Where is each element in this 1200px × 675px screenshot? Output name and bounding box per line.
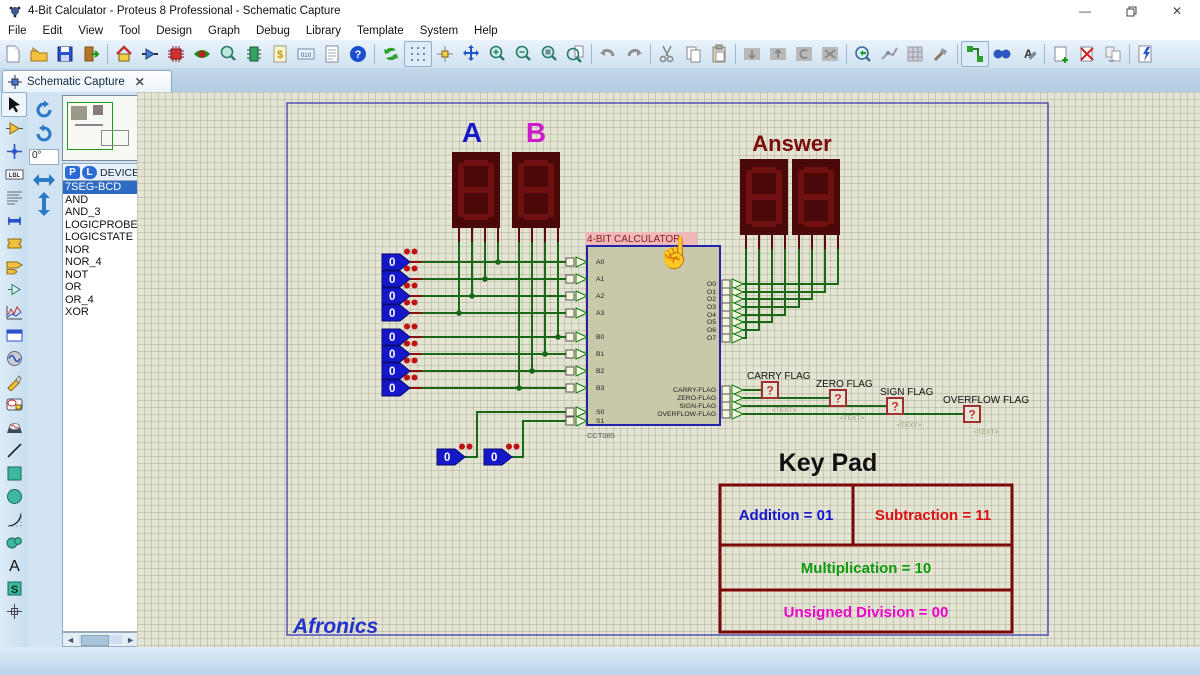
scroll-left-icon[interactable]: ◄ <box>63 635 78 645</box>
undo-icon[interactable] <box>595 42 621 66</box>
device-item[interactable]: NOT <box>63 269 138 282</box>
svg-text:ZERO-FLAG: ZERO-FLAG <box>677 395 716 402</box>
device-item[interactable]: NOR <box>63 244 138 257</box>
device-item[interactable]: AND_3 <box>63 206 138 219</box>
design-tool-icon[interactable] <box>928 42 954 66</box>
svg-text:OVERFLOW-FLAG: OVERFLOW-FLAG <box>657 411 716 418</box>
svg-text:B2: B2 <box>596 368 605 375</box>
pan-icon[interactable] <box>458 42 484 66</box>
label-b: B <box>526 117 546 148</box>
device-item[interactable]: 7SEG-BCD <box>63 181 138 194</box>
2d-circle-icon[interactable] <box>2 485 26 508</box>
svg-text:ZERO FLAG: ZERO FLAG <box>816 379 873 390</box>
label-a: A <box>462 117 482 148</box>
electrical-check-icon[interactable] <box>1133 42 1159 66</box>
menu-system[interactable]: System <box>412 25 466 37</box>
wire-label-mode-icon[interactable]: LBL <box>2 163 26 186</box>
save-icon[interactable] <box>52 42 78 66</box>
scrollbar-thumb[interactable] <box>81 635 109 646</box>
menu-template[interactable]: Template <box>349 25 412 37</box>
wire-autorouter-icon[interactable] <box>961 41 989 67</box>
svg-text:A2: A2 <box>596 293 605 300</box>
menu-design[interactable]: Design <box>148 25 200 37</box>
menu-file[interactable]: File <box>0 25 35 37</box>
tab-bar: Schematic Capture ✕ <box>0 68 1200 93</box>
zoom-sheet-icon[interactable] <box>562 42 588 66</box>
component-icon[interactable] <box>137 42 163 66</box>
display-answer-low[interactable] <box>792 159 840 235</box>
svg-text:010: 010 <box>301 52 312 59</box>
svg-text:O1: O1 <box>707 289 716 296</box>
svg-text:<TEXT>: <TEXT> <box>974 429 998 436</box>
block-move-icon <box>765 42 791 66</box>
svg-text:O3: O3 <box>707 304 716 311</box>
paste-icon[interactable] <box>706 42 732 66</box>
keypad-division: Unsigned Division = 00 <box>784 604 949 621</box>
title-bar: 4-Bit Calculator - Proteus 8 Professiona… <box>0 0 1200 22</box>
keypad-addition: Addition = 01 <box>739 507 834 524</box>
svg-text:CARRY FLAG: CARRY FLAG <box>747 371 811 382</box>
copy-icon[interactable] <box>680 42 706 66</box>
device-item[interactable]: XOR <box>63 306 138 319</box>
device-item[interactable]: AND <box>63 194 138 207</box>
design-explorer-icon[interactable] <box>215 42 241 66</box>
keypad-subtraction: Subtraction = 11 <box>875 507 991 524</box>
minimize-button[interactable]: — <box>1062 0 1108 22</box>
device-item[interactable]: LOGICSTATE <box>63 231 138 244</box>
svg-text:A: A <box>9 558 20 575</box>
svg-text:S0: S0 <box>596 409 605 416</box>
display-a[interactable] <box>452 152 500 228</box>
2d-marker-icon[interactable] <box>2 600 26 623</box>
tape-recorder-mode-icon[interactable] <box>2 324 26 347</box>
svg-text:SIGN-FLAG: SIGN-FLAG <box>679 403 716 410</box>
3d-view-icon[interactable] <box>189 42 215 66</box>
svg-text:O7: O7 <box>707 335 716 342</box>
svg-text:<TEXT>: <TEXT> <box>897 422 921 429</box>
svg-text:SIGN FLAG: SIGN FLAG <box>880 387 934 398</box>
pick-devices-button[interactable]: P <box>65 166 80 179</box>
menu-graph[interactable]: Graph <box>200 25 248 37</box>
logic-states[interactable] <box>382 249 520 466</box>
erc-report-icon[interactable] <box>319 42 345 66</box>
2d-arc-icon[interactable] <box>2 508 26 531</box>
library-button[interactable]: L <box>82 166 97 179</box>
close-button[interactable]: ✕ <box>1154 0 1200 22</box>
redraw-icon[interactable] <box>378 42 404 66</box>
pattern-icon[interactable] <box>902 42 928 66</box>
zoom-in-icon[interactable] <box>484 42 510 66</box>
block-rotate-icon <box>791 42 817 66</box>
component-mode-icon[interactable] <box>2 117 26 140</box>
import-icon[interactable] <box>78 42 104 66</box>
new-file-icon[interactable] <box>0 42 26 66</box>
tab-close-icon[interactable]: ✕ <box>135 75 145 89</box>
device-item[interactable]: OR <box>63 281 138 294</box>
hand-cursor: ☝ <box>656 234 693 271</box>
cut-icon[interactable] <box>654 42 680 66</box>
schematic-canvas[interactable]: 0 ? <box>137 92 1200 647</box>
svg-text:S1: S1 <box>596 418 605 425</box>
redo-icon[interactable] <box>621 42 647 66</box>
overview-thumbnail[interactable] <box>62 95 139 161</box>
svg-text:O4: O4 <box>707 312 716 319</box>
status-bar: i 8 Message(s) SUBCIRCUIT 4-BIT CALCULAT… <box>0 647 1200 675</box>
selector-title: DEVICES <box>100 167 139 179</box>
subcircuit-mode-icon[interactable] <box>2 232 26 255</box>
app-icon <box>8 4 22 18</box>
brand-label: Afronics <box>292 615 378 638</box>
svg-text:A3: A3 <box>596 310 605 317</box>
open-folder-icon[interactable] <box>26 42 52 66</box>
side-panel: 0° P L DEVICES 7SEG-BCD AND AND_3 LOGICP… <box>28 92 137 647</box>
junction-mode-icon[interactable] <box>2 140 26 163</box>
svg-text:B0: B0 <box>596 334 605 341</box>
menu-library[interactable]: Library <box>298 25 349 37</box>
help-icon[interactable]: ? <box>345 42 371 66</box>
device-list-scrollbar[interactable]: ◄ ► <box>62 632 139 647</box>
device-item[interactable]: LOGICPROBE ( <box>63 219 138 232</box>
svg-text:B3: B3 <box>596 385 605 392</box>
device-pin-mode-icon[interactable] <box>2 278 26 301</box>
rotate-clockwise-icon[interactable] <box>34 98 54 122</box>
menu-edit[interactable]: Edit <box>35 25 71 37</box>
zoom-out-icon[interactable] <box>510 42 536 66</box>
scroll-right-icon[interactable]: ► <box>123 635 138 645</box>
home-icon[interactable] <box>111 42 137 66</box>
menu-bar: File Edit View Tool Design Graph Debug L… <box>0 22 1200 41</box>
search-icon[interactable] <box>989 42 1015 66</box>
schematic-tab-icon <box>8 75 22 89</box>
2d-path-icon[interactable] <box>2 531 26 554</box>
display-answer-high[interactable] <box>740 159 788 235</box>
2d-symbol-icon[interactable]: S <box>2 577 26 600</box>
proteus-window: 4-Bit Calculator - Proteus 8 Professiona… <box>0 0 1200 675</box>
block-copy-icon <box>739 42 765 66</box>
svg-text:B1: B1 <box>596 351 605 358</box>
bus-mode-icon[interactable] <box>2 209 26 232</box>
svg-text:A1: A1 <box>596 276 605 283</box>
2d-box-icon[interactable] <box>2 462 26 485</box>
device-list: 7SEG-BCD AND AND_3 LOGICPROBE ( LOGICSTA… <box>62 180 139 632</box>
zoom-area-icon[interactable] <box>536 42 562 66</box>
tab-label: Schematic Capture <box>27 76 125 88</box>
origin-icon[interactable] <box>432 42 458 66</box>
2d-line-icon[interactable] <box>2 439 26 462</box>
chip-ref: CCT085 <box>587 431 615 440</box>
wire-edit-icon[interactable] <box>876 42 902 66</box>
2d-text-icon[interactable]: A <box>2 554 26 577</box>
svg-text:O6: O6 <box>707 327 716 334</box>
svg-text:O5: O5 <box>707 319 716 326</box>
keypad-multiplication: Multiplication = 10 <box>801 560 931 577</box>
svg-text:$: $ <box>277 49 283 61</box>
display-b[interactable] <box>512 152 560 228</box>
svg-text:CARRY-FLAG: CARRY-FLAG <box>673 387 716 394</box>
menu-debug[interactable]: Debug <box>248 25 298 37</box>
graph-mode-icon[interactable] <box>2 301 26 324</box>
rotate-anticlockwise-icon[interactable] <box>34 122 54 146</box>
restore-button[interactable] <box>1108 0 1154 22</box>
main-toolbar: $ 010 ? A <box>0 40 1200 69</box>
assembly-icon[interactable]: 010 <box>293 42 319 66</box>
menu-view[interactable]: View <box>70 25 111 37</box>
tab-schematic-capture[interactable]: Schematic Capture ✕ <box>2 70 172 93</box>
svg-text:LBL: LBL <box>8 173 20 179</box>
device-item[interactable]: NOR_4 <box>63 256 138 269</box>
generator-mode-icon[interactable] <box>2 347 26 370</box>
window-title: 4-Bit Calculator - Proteus 8 Professiona… <box>28 5 341 17</box>
terminal-mode-icon[interactable] <box>2 255 26 278</box>
voltage-probe-mode-icon[interactable] <box>2 370 26 393</box>
selection-mode-icon[interactable] <box>1 92 27 117</box>
mirror-vertical-icon[interactable] <box>37 192 51 216</box>
menu-help[interactable]: Help <box>466 25 506 37</box>
new-sheet-icon[interactable] <box>1048 42 1074 66</box>
text-script-mode-icon[interactable] <box>2 186 26 209</box>
keypad-title: Key Pad <box>779 449 878 477</box>
virtual-instrument-mode-icon[interactable] <box>2 416 26 439</box>
grid-toggle-icon[interactable] <box>404 41 432 67</box>
svg-text:?: ? <box>355 49 362 61</box>
pcb-chip-icon[interactable] <box>163 42 189 66</box>
goto-sheet-icon[interactable] <box>1100 42 1126 66</box>
svg-text:A0: A0 <box>596 259 605 266</box>
menu-tool[interactable]: Tool <box>111 25 148 37</box>
bill-of-materials-icon[interactable]: $ <box>267 42 293 66</box>
block-delete-icon <box>817 42 843 66</box>
mirror-horizontal-icon[interactable] <box>33 168 55 192</box>
property-assignment-icon[interactable]: A <box>1015 42 1041 66</box>
svg-text:O0: O0 <box>707 281 716 288</box>
svg-text:<TEXT>: <TEXT> <box>840 415 864 422</box>
current-probe-mode-icon[interactable] <box>2 393 26 416</box>
device-item[interactable]: OR_4 <box>63 294 138 307</box>
mode-toolbar: LBL A S <box>0 92 29 647</box>
svg-text:S: S <box>10 584 17 596</box>
remove-sheet-icon[interactable] <box>1074 42 1100 66</box>
ic-editor-icon[interactable] <box>241 42 267 66</box>
svg-text:OVERFLOW FLAG: OVERFLOW FLAG <box>943 395 1029 406</box>
svg-text:O2: O2 <box>707 296 716 303</box>
label-answer: Answer <box>752 131 832 156</box>
svg-text:<TEXT>: <TEXT> <box>772 407 796 414</box>
find-component-icon[interactable] <box>850 42 876 66</box>
rotation-angle-field[interactable]: 0° <box>29 149 59 165</box>
